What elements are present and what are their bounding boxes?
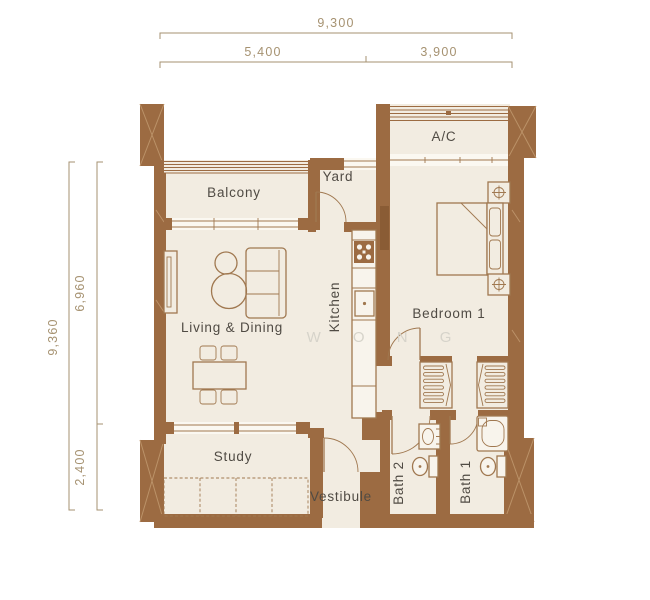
kitchen-counter — [352, 230, 376, 418]
toilet-bath1 — [481, 456, 507, 477]
label-living-dining: Living & Dining — [181, 320, 283, 335]
closet-2 — [477, 362, 508, 408]
kitchen-sink — [355, 291, 374, 316]
corner-post-top-left — [140, 104, 164, 166]
dimension-side-total: 9,360 — [46, 318, 60, 355]
wall-kitchen-bedroom — [376, 162, 390, 356]
toilet-bath2 — [413, 456, 439, 477]
wall-yard-kitchen-jamb — [308, 222, 316, 232]
wall-balcony-yard — [308, 160, 320, 230]
label-yard: Yard — [323, 169, 354, 184]
dimension-side-upper: 6,960 — [73, 274, 87, 311]
wall-bath2-door-jamb — [382, 410, 392, 420]
wall-bedroom-south-jamb — [376, 356, 392, 366]
wall-study-right — [310, 430, 323, 518]
ac-louver — [390, 104, 508, 121]
sofa — [246, 248, 286, 318]
dimension-side-lower: 2,400 — [73, 448, 87, 485]
bathtub — [477, 416, 508, 451]
label-balcony: Balcony — [207, 185, 261, 200]
floor-plan: 9,300 5,400 3,900 9,360 6,960 2,400 — [0, 0, 650, 600]
washbasin-bath2 — [419, 424, 440, 449]
corner-post-top-right — [508, 106, 536, 158]
label-study: Study — [214, 449, 253, 464]
dimension-top-right: 3,900 — [420, 45, 457, 59]
label-bedroom1: Bedroom 1 — [412, 306, 485, 321]
wall-ac-left — [376, 104, 390, 164]
wall-pilaster — [380, 206, 389, 250]
nightstand-bottom — [488, 274, 510, 295]
dimensions-top: 9,300 5,400 3,900 — [160, 16, 512, 68]
study-window — [154, 422, 310, 434]
dimensions-left: 9,360 6,960 2,400 — [46, 162, 103, 510]
corner-post-bottom-left — [140, 440, 164, 522]
corner-post-bottom-right — [504, 438, 534, 522]
label-ac: A/C — [432, 129, 457, 144]
dimension-top-total: 9,300 — [317, 16, 354, 30]
dining-table — [193, 362, 246, 389]
bath1-fixtures — [477, 416, 508, 477]
label-vestibule: Vestibule — [310, 489, 372, 504]
closet-1 — [420, 362, 452, 408]
stove — [354, 241, 374, 263]
label-kitchen: Kitchen — [327, 282, 342, 333]
dimension-top-left: 5,400 — [244, 45, 281, 59]
label-bath1: Bath 1 — [458, 460, 473, 504]
nightstand-top — [488, 182, 510, 203]
tv-console — [164, 251, 177, 313]
label-bath2: Bath 2 — [391, 461, 406, 505]
balcony-railing — [164, 160, 310, 173]
ac-bedroom-window — [390, 154, 508, 166]
balcony-window — [164, 218, 310, 230]
bed — [437, 203, 503, 275]
wall-bath2-left — [380, 412, 390, 518]
floor-plan-svg: 9,300 5,400 3,900 9,360 6,960 2,400 — [0, 0, 650, 600]
